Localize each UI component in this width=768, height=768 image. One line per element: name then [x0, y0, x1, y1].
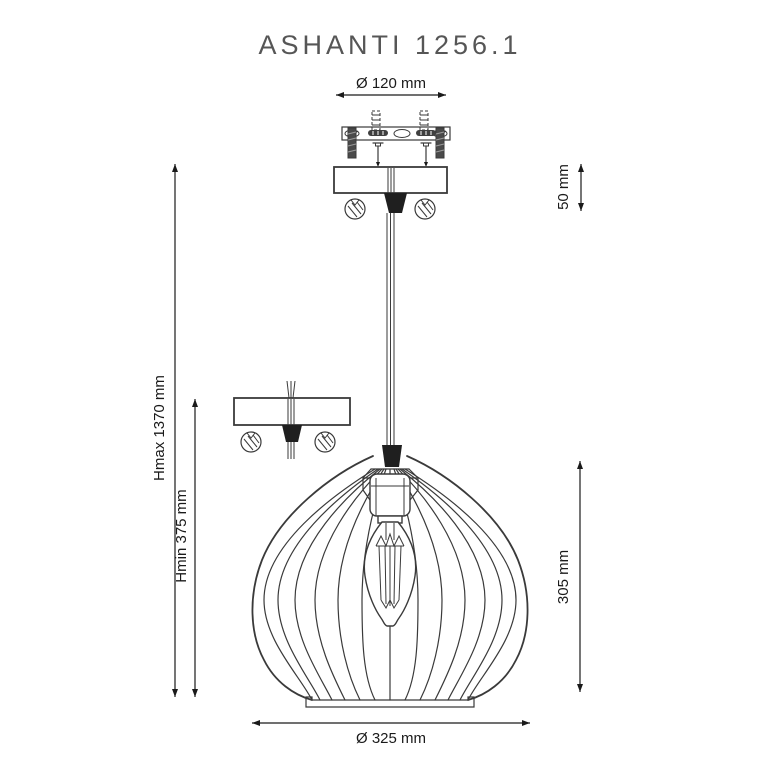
ceiling-canopy — [234, 398, 350, 425]
pendant-lamp-diagram: ASHANTI 1256.1 Ø 120 mm — [0, 0, 768, 768]
dimension-label: 305 mm — [555, 550, 572, 604]
bracket-center-hole — [394, 130, 410, 138]
hatch-line — [357, 202, 363, 210]
technical-drawing-page: ASHANTI 1256.1 Ø 120 mm — [0, 0, 768, 768]
screw-icon — [373, 143, 383, 167]
threaded-stud-icon — [436, 128, 444, 158]
lamp-shade — [252, 445, 527, 707]
suspension-cord — [387, 213, 394, 446]
bracket-slot — [368, 130, 388, 136]
dimension-hmax: Hmax 1370 mm — [151, 164, 175, 697]
dimension-hmin: Hmin 375 mm — [173, 399, 195, 697]
screw-head-icon — [315, 432, 335, 452]
wire-line — [293, 381, 295, 398]
dimension-bottom-diameter: Ø 325 mm — [252, 723, 530, 747]
cord-grip — [282, 425, 302, 442]
dimension-label: 50 mm — [555, 164, 572, 210]
bracket-slot — [416, 130, 436, 136]
hatch-line — [427, 202, 433, 210]
hatch-line — [253, 435, 259, 443]
screw-head-icon — [345, 199, 365, 219]
product-title: ASHANTI 1256.1 — [258, 30, 521, 60]
canopy-detail-view — [234, 381, 350, 459]
dimension-shade-height: 305 mm — [555, 461, 580, 692]
shade-rib — [405, 469, 516, 700]
shade-rib — [278, 469, 378, 700]
dimension-label: Hmax 1370 mm — [151, 375, 168, 481]
dimension-label: Ø 325 mm — [356, 730, 426, 747]
light-bulb — [364, 522, 415, 626]
mounting-bracket — [342, 127, 450, 140]
screw-head-icon — [241, 432, 261, 452]
dimension-top-diameter: Ø 120 mm — [336, 75, 446, 95]
cord-grip — [384, 193, 407, 213]
cord-grip — [382, 445, 402, 467]
threaded-stud-icon — [348, 128, 356, 158]
dimension-label: Ø 120 mm — [356, 75, 426, 92]
ceiling-mount-assembly — [334, 111, 450, 219]
screw-head-icon — [415, 199, 435, 219]
screw-icon — [421, 143, 431, 167]
hatch-line — [327, 435, 333, 443]
dimension-canopy-height: 50 mm — [555, 164, 581, 211]
dimension-label: Hmin 375 mm — [173, 489, 190, 582]
wire-line — [287, 381, 289, 398]
shade-rib — [264, 469, 375, 700]
shade-rib — [402, 469, 502, 700]
